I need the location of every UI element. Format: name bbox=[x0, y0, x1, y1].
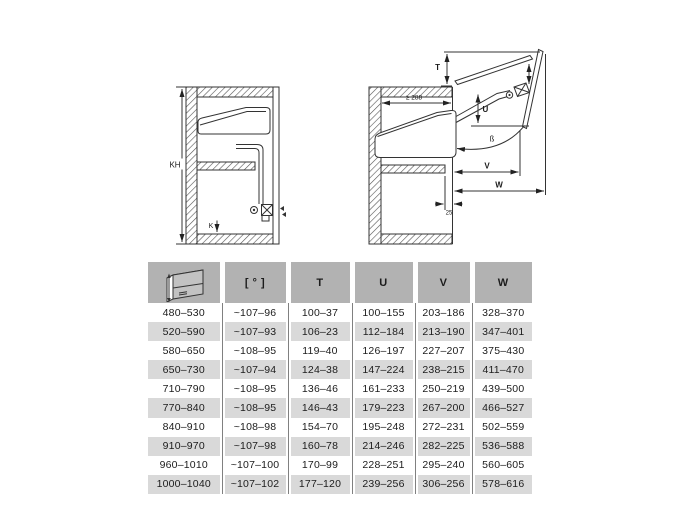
table-cell: 1000–1040 bbox=[148, 475, 222, 494]
technical-diagrams: KH K ≥ 288 bbox=[0, 0, 700, 260]
table-cell: 147–224 bbox=[352, 360, 415, 379]
table-row: 580–650~108–95119–40126–197227–207375–43… bbox=[148, 341, 532, 360]
table-cell: 119–40 bbox=[288, 341, 352, 360]
table-cell: 411–470 bbox=[472, 360, 532, 379]
angle-label: ß bbox=[490, 135, 495, 144]
w-label: W bbox=[495, 181, 503, 190]
table-row: 520–590~107–93106–23112–184213–190347–40… bbox=[148, 322, 532, 341]
dim-w: W bbox=[455, 54, 546, 195]
table-cell: ~107–100 bbox=[222, 456, 288, 475]
table-cell: 295–240 bbox=[415, 456, 472, 475]
table-row: 770–840~108–95146–43179–223267–200466–52… bbox=[148, 398, 532, 417]
column-separator bbox=[415, 303, 416, 494]
table-cell: 650–730 bbox=[148, 360, 222, 379]
table-cell: ~107–96 bbox=[222, 303, 288, 322]
table-row: 910–970~107–98160–78214–246282–225536–58… bbox=[148, 437, 532, 456]
table-cell: ~107–102 bbox=[222, 475, 288, 494]
table-cell: 100–37 bbox=[288, 303, 352, 322]
table-cell: 106–23 bbox=[288, 322, 352, 341]
table-row: 840–910~108–98154–70195–248272–231502–55… bbox=[148, 418, 532, 437]
shelf bbox=[197, 162, 255, 170]
table-cell: 910–970 bbox=[148, 437, 222, 456]
catalog-page: KH K ≥ 288 bbox=[0, 0, 700, 525]
left-wall bbox=[186, 87, 197, 244]
table-cell: 239–256 bbox=[352, 475, 415, 494]
table-body: 480–530~107–96100–37100–155203–186328–37… bbox=[148, 303, 532, 494]
table-cell: ~108–95 bbox=[222, 341, 288, 360]
table-cell: ~108–98 bbox=[222, 418, 288, 437]
table-cell: 179–223 bbox=[352, 398, 415, 417]
cabinet-height-icon bbox=[156, 264, 212, 302]
opening-angle: ß bbox=[457, 126, 525, 150]
table-cell: 466–527 bbox=[472, 398, 532, 417]
table-cell: 375–430 bbox=[472, 341, 532, 360]
table-cell: 439–500 bbox=[472, 379, 532, 398]
table-cell: 306–256 bbox=[415, 475, 472, 494]
table-cell: 502–559 bbox=[472, 418, 532, 437]
bottom-wall bbox=[197, 234, 273, 244]
table-cell: 161–233 bbox=[352, 379, 415, 398]
column-separator bbox=[222, 303, 223, 494]
table-cell: 328–370 bbox=[472, 303, 532, 322]
dim-v: V bbox=[455, 130, 521, 176]
table-row: 1000–1040~107–102177–120239–256306–25657… bbox=[148, 475, 532, 494]
table-row: 710–790~108–95136–46161–233250–219439–50… bbox=[148, 379, 532, 398]
column-header-w: W bbox=[472, 262, 532, 303]
table-row: 650–730~107–94124–38147–224238–215411–47… bbox=[148, 360, 532, 379]
k-label: K bbox=[209, 223, 214, 230]
table-cell: ~107–94 bbox=[222, 360, 288, 379]
table-cell: 203–186 bbox=[415, 303, 472, 322]
table-cell: ~108–95 bbox=[222, 398, 288, 417]
v-label: V bbox=[484, 162, 490, 171]
bottom-wall bbox=[381, 234, 452, 244]
table-cell: 126–197 bbox=[352, 341, 415, 360]
dim-k: K bbox=[209, 221, 217, 233]
table-cell: 520–590 bbox=[148, 322, 222, 341]
depth-label: ≥ 288 bbox=[406, 95, 423, 102]
closed-door bbox=[273, 87, 279, 244]
column-separator bbox=[352, 303, 353, 494]
table-cell: 228–251 bbox=[352, 456, 415, 475]
table-cell: 578–616 bbox=[472, 475, 532, 494]
left-wall bbox=[369, 87, 381, 244]
table-cell: ~107–98 bbox=[222, 437, 288, 456]
table-cell: 770–840 bbox=[148, 398, 222, 417]
table-cell: 536–588 bbox=[472, 437, 532, 456]
table-cell: 272–231 bbox=[415, 418, 472, 437]
table-cell: 100–155 bbox=[352, 303, 415, 322]
u-label: U bbox=[483, 105, 489, 114]
table-cell: 227–207 bbox=[415, 341, 472, 360]
dim-25: 25 bbox=[435, 176, 463, 217]
table-cell: 177–120 bbox=[288, 475, 352, 494]
column-header-cabinet bbox=[148, 262, 222, 303]
table-cell: 238–215 bbox=[415, 360, 472, 379]
table-row: 480–530~107–96100–37100–155203–186328–37… bbox=[148, 303, 532, 322]
table-cell: 213–190 bbox=[415, 322, 472, 341]
t-label: T bbox=[435, 63, 440, 72]
table-row: 960–1010~107–100170–99228–251295–240560–… bbox=[148, 456, 532, 475]
column-header-v: V bbox=[415, 262, 472, 303]
table-cell: 267–200 bbox=[415, 398, 472, 417]
table-cell: 112–184 bbox=[352, 322, 415, 341]
table-cell: 710–790 bbox=[148, 379, 222, 398]
table-cell: 146–43 bbox=[288, 398, 352, 417]
table-cell: 480–530 bbox=[148, 303, 222, 322]
table-cell: 136–46 bbox=[288, 379, 352, 398]
table-cell: ~107–93 bbox=[222, 322, 288, 341]
table-cell: 195–248 bbox=[352, 418, 415, 437]
table-cell: 124–38 bbox=[288, 360, 352, 379]
door-top-panel bbox=[455, 56, 533, 85]
table-header: [ ° ] T U V W bbox=[148, 262, 532, 303]
column-header-angle: [ ° ] bbox=[222, 262, 288, 303]
lift-mechanism bbox=[375, 110, 456, 157]
table-cell: 960–1010 bbox=[148, 456, 222, 475]
spec-table: [ ° ] T U V W 480–530~107–96100–37100–15… bbox=[148, 262, 532, 495]
door-fitting bbox=[251, 205, 287, 222]
column-separator bbox=[288, 303, 289, 494]
table-cell: 214–246 bbox=[352, 437, 415, 456]
column-separator bbox=[472, 303, 473, 494]
dim-kh: KH bbox=[168, 87, 189, 244]
shelf bbox=[381, 165, 445, 173]
kh-label: KH bbox=[169, 161, 180, 170]
table-cell: 282–225 bbox=[415, 437, 472, 456]
open-cabinet-diagram: ≥ 288 T bbox=[369, 50, 546, 245]
top-wall bbox=[197, 87, 273, 97]
table-cell: ~108–95 bbox=[222, 379, 288, 398]
column-header-u: U bbox=[352, 262, 415, 303]
inset-label: 25 bbox=[446, 211, 453, 217]
table-cell: 250–219 bbox=[415, 379, 472, 398]
closed-cabinet-diagram: KH K bbox=[168, 87, 287, 244]
table-cell: 160–78 bbox=[288, 437, 352, 456]
table-cell: 347–401 bbox=[472, 322, 532, 341]
table-cell: 154–70 bbox=[288, 418, 352, 437]
table-cell: 580–650 bbox=[148, 341, 222, 360]
table-cell: 560–605 bbox=[472, 456, 532, 475]
table-cell: 170–99 bbox=[288, 456, 352, 475]
table-cell: 840–910 bbox=[148, 418, 222, 437]
column-header-t: T bbox=[288, 262, 352, 303]
